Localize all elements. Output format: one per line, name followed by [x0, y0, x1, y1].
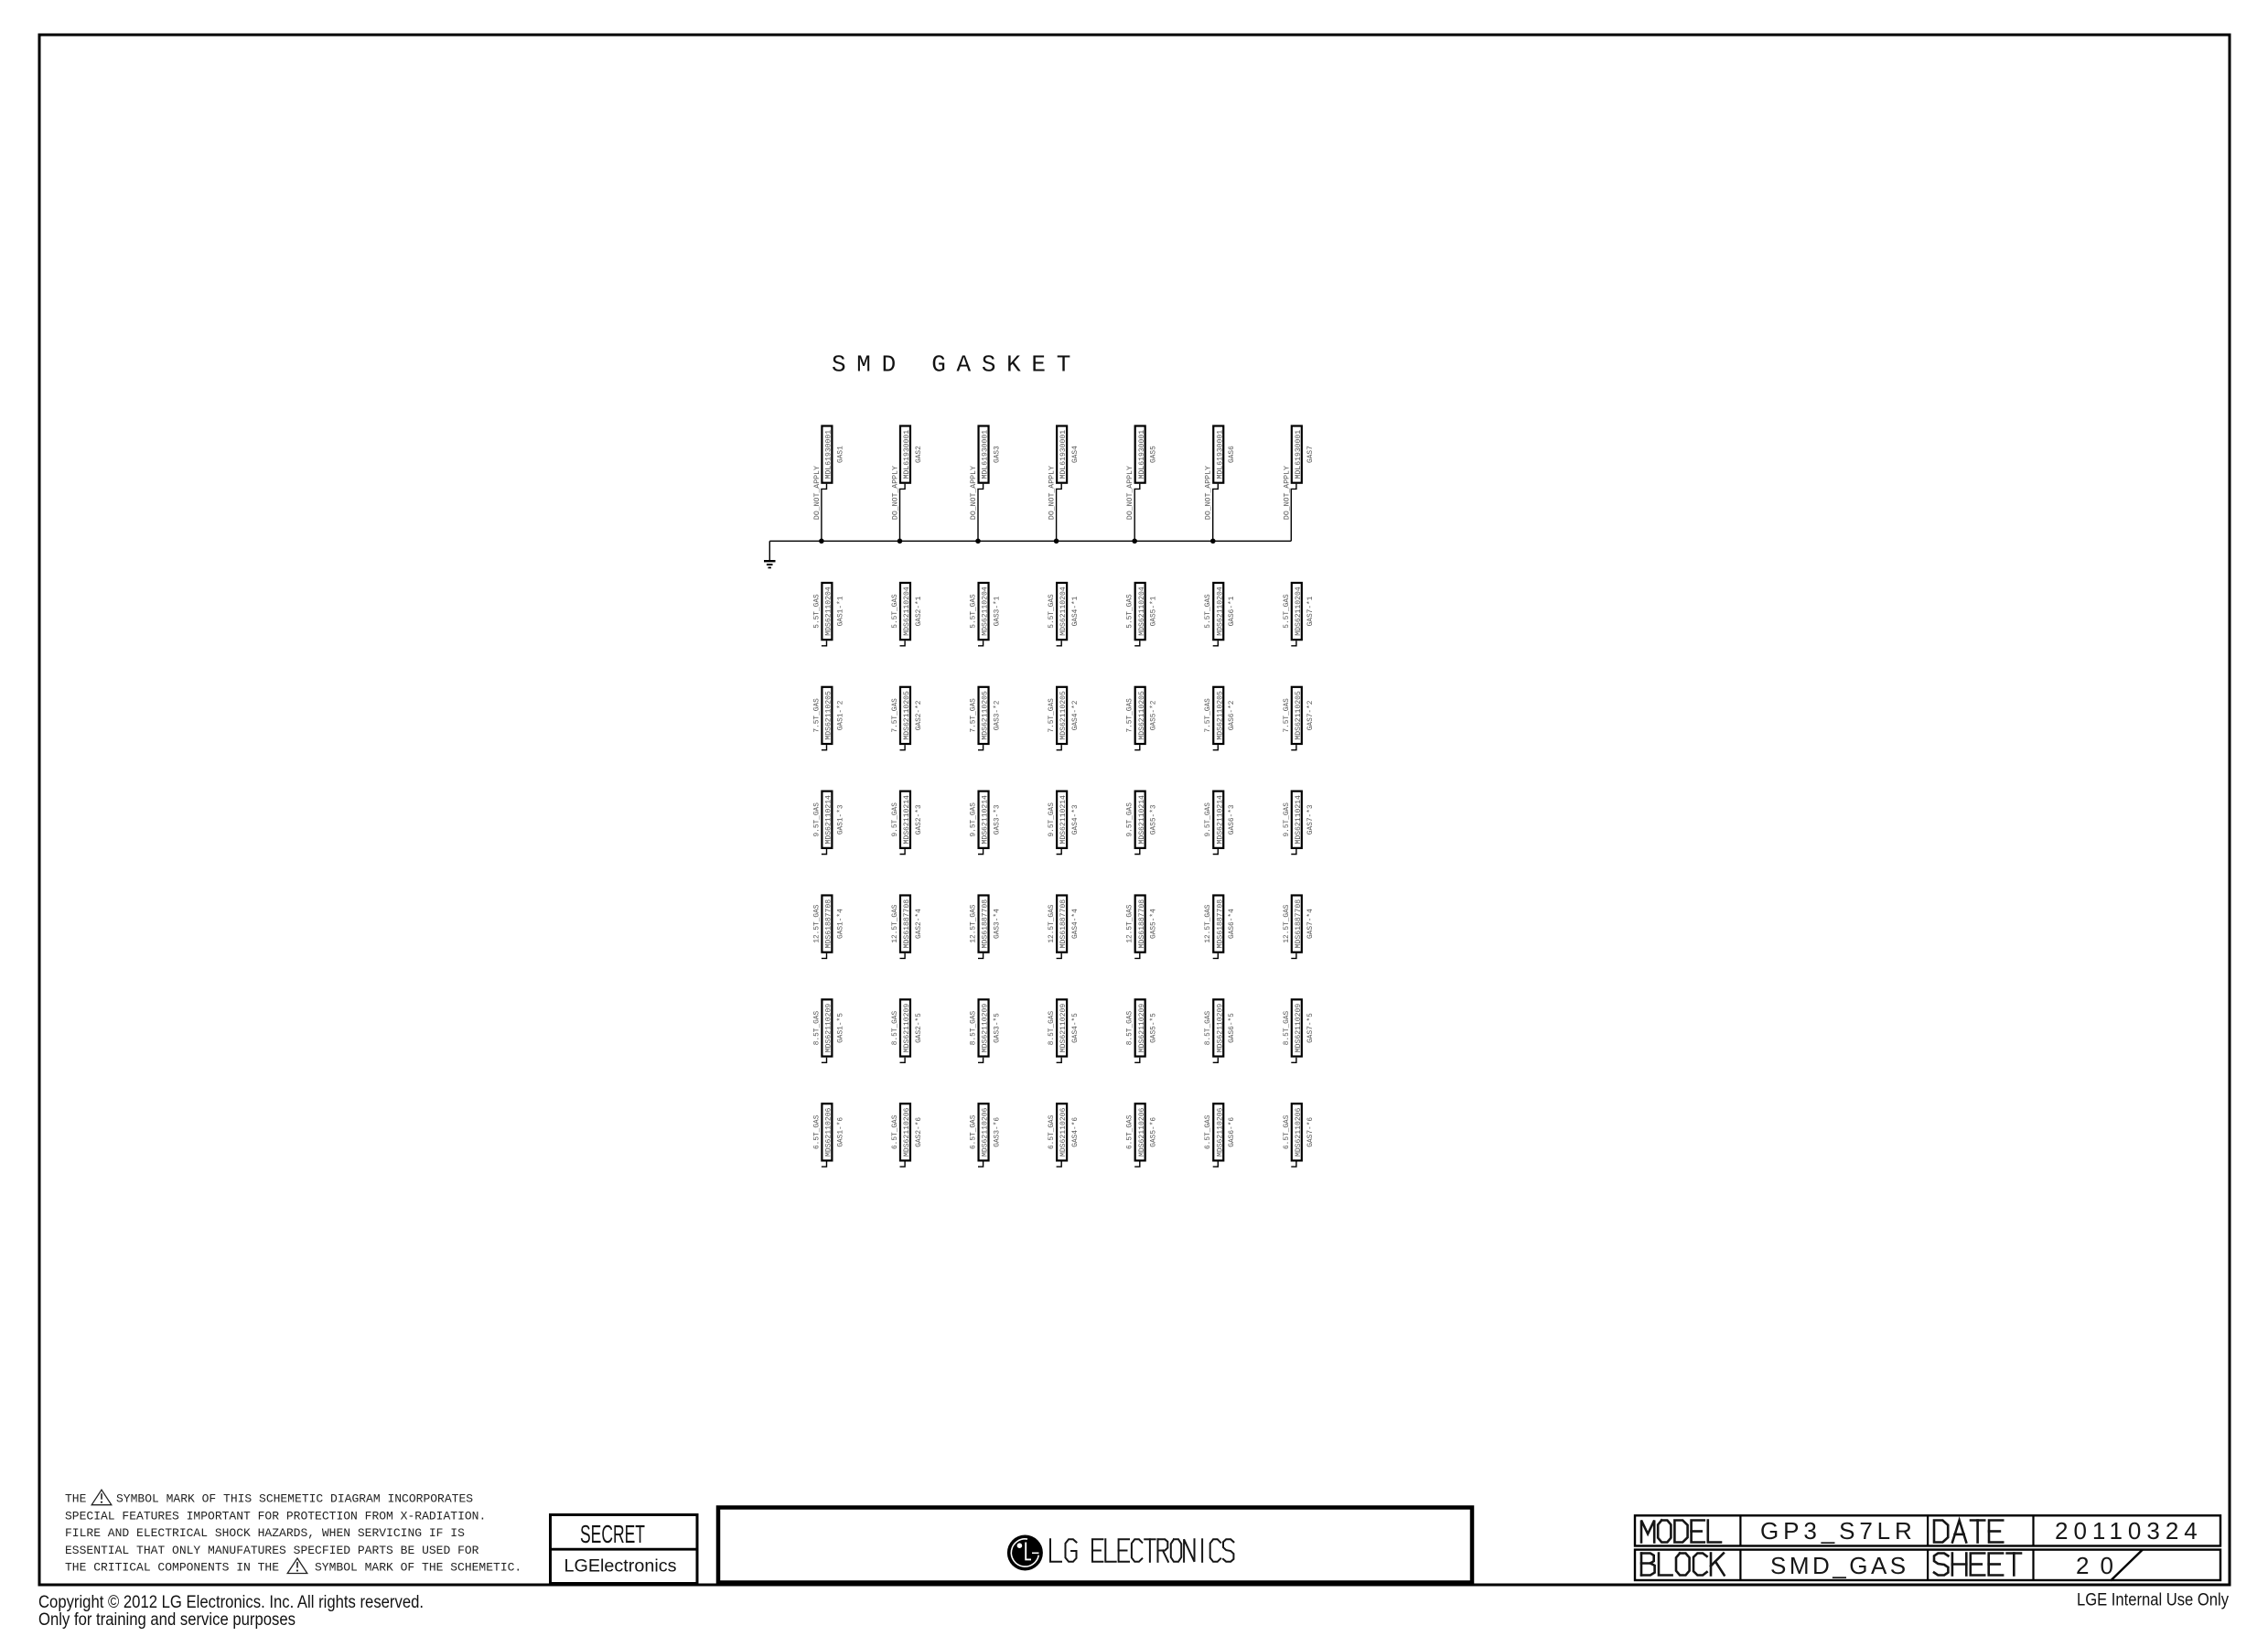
svg-text:MDS62110204: MDS62110204 — [1059, 587, 1068, 636]
svg-text:9.5T_GAS: 9.5T_GAS — [1127, 802, 1134, 837]
svg-text:MDS62110204: MDS62110204 — [1295, 587, 1303, 636]
svg-text:GAS3-*1: GAS3-*1 — [994, 596, 1002, 626]
svg-text:MDS62110204: MDS62110204 — [903, 587, 911, 636]
svg-text:9.5T_GAS: 9.5T_GAS — [1205, 802, 1212, 837]
svg-text:MDS62110204: MDS62110204 — [1216, 587, 1224, 636]
svg-text:GAS4: GAS4 — [1072, 446, 1080, 463]
svg-text:GAS6-*3: GAS6-*3 — [1229, 804, 1236, 834]
svg-text:MDS62110206: MDS62110206 — [1059, 1107, 1068, 1157]
svg-text:MDL61930001: MDL61930001 — [982, 430, 990, 479]
svg-text:GAS1-*4: GAS1-*4 — [837, 909, 844, 939]
svg-text:5.5T_GAS: 5.5T_GAS — [971, 594, 978, 629]
svg-text:7.5T_GAS: 7.5T_GAS — [1048, 698, 1056, 733]
svg-text:9.5T_GAS: 9.5T_GAS — [971, 802, 978, 837]
svg-text:9.5T_GAS: 9.5T_GAS — [1284, 802, 1291, 837]
svg-text:6.5T_GAS: 6.5T_GAS — [1127, 1114, 1134, 1149]
svg-text:6.5T_GAS: 6.5T_GAS — [1048, 1114, 1056, 1149]
svg-text:GAS7-*1: GAS7-*1 — [1307, 596, 1315, 626]
svg-text:MDS62110209: MDS62110209 — [1216, 1004, 1224, 1053]
svg-text:GAS4-*3: GAS4-*3 — [1072, 804, 1080, 834]
svg-text:7.5T_GAS: 7.5T_GAS — [971, 698, 978, 733]
svg-text:MDS62110205: MDS62110205 — [1138, 691, 1146, 740]
svg-text:MDS61887708: MDS61887708 — [1216, 899, 1224, 949]
svg-text:DO_NOT_APPLY: DO_NOT_APPLY — [813, 466, 822, 520]
svg-text:GAS3-*6: GAS3-*6 — [994, 1117, 1002, 1147]
svg-text:7.5T_GAS: 7.5T_GAS — [1205, 698, 1212, 733]
svg-text:MDS62110205: MDS62110205 — [1216, 691, 1224, 740]
svg-text:SMD GASKET: SMD GASKET — [832, 351, 1081, 379]
svg-text:MDS62110214: MDS62110214 — [825, 795, 833, 845]
svg-text:GAS5-*3: GAS5-*3 — [1151, 804, 1158, 834]
svg-text:MDS62110206: MDS62110206 — [982, 1107, 990, 1157]
svg-text:8.5T_GAS: 8.5T_GAS — [1284, 1010, 1291, 1045]
svg-text:7.5T_GAS: 7.5T_GAS — [892, 698, 899, 733]
svg-text:GAS5-*1: GAS5-*1 — [1151, 596, 1158, 626]
svg-text:MDS62110205: MDS62110205 — [825, 691, 833, 740]
svg-text:6.5T_GAS: 6.5T_GAS — [892, 1114, 899, 1149]
svg-text:GAS6-*1: GAS6-*1 — [1229, 596, 1236, 626]
svg-text:GAS4-*2: GAS4-*2 — [1072, 700, 1080, 730]
svg-text:5.5T_GAS: 5.5T_GAS — [892, 594, 899, 629]
svg-text:GAS4-*6: GAS4-*6 — [1072, 1117, 1080, 1147]
svg-text:MDS61887708: MDS61887708 — [1138, 899, 1146, 949]
svg-text:12.5T_GAS: 12.5T_GAS — [1284, 904, 1291, 942]
svg-text:MDS62110209: MDS62110209 — [982, 1004, 990, 1053]
svg-text:GAS2: GAS2 — [916, 446, 923, 463]
svg-text:MDS62110214: MDS62110214 — [1138, 795, 1146, 845]
svg-text:MDL61930001: MDL61930001 — [1138, 430, 1146, 479]
svg-text:8.5T_GAS: 8.5T_GAS — [813, 1010, 821, 1045]
svg-text:SYMBOL MARK OF THIS SCHEMETIC: SYMBOL MARK OF THIS SCHEMETIC DIAGRAM IN… — [116, 1492, 473, 1506]
svg-text:THE CRITICAL COMPONENTS IN THE: THE CRITICAL COMPONENTS IN THE — [65, 1561, 279, 1575]
svg-text:12.5T_GAS: 12.5T_GAS — [1127, 904, 1134, 942]
svg-text:GAS3-*3: GAS3-*3 — [994, 804, 1002, 834]
svg-text:8.5T_GAS: 8.5T_GAS — [971, 1010, 978, 1045]
svg-text:DO_NOT_APPLY: DO_NOT_APPLY — [1048, 466, 1057, 520]
svg-text:12.5T_GAS: 12.5T_GAS — [1205, 904, 1212, 942]
svg-text:MDS62110209: MDS62110209 — [1138, 1004, 1146, 1053]
svg-text:GAS6-*2: GAS6-*2 — [1229, 700, 1236, 730]
svg-text:7.5T_GAS: 7.5T_GAS — [1284, 698, 1291, 733]
svg-text:9.5T_GAS: 9.5T_GAS — [813, 802, 821, 837]
svg-text:MDS62110209: MDS62110209 — [825, 1004, 833, 1053]
svg-text:GAS5-*4: GAS5-*4 — [1151, 909, 1158, 939]
svg-text:GAS2-*5: GAS2-*5 — [916, 1013, 923, 1043]
svg-text:MDS62110214: MDS62110214 — [982, 795, 990, 845]
svg-text:GAS6-*4: GAS6-*4 — [1229, 909, 1236, 939]
svg-text:8.5T_GAS: 8.5T_GAS — [1048, 1010, 1056, 1045]
svg-text:DO_NOT_APPLY: DO_NOT_APPLY — [1205, 466, 1213, 520]
svg-text:MDS62110214: MDS62110214 — [1295, 795, 1303, 845]
svg-text:GAS1-*2: GAS1-*2 — [837, 700, 844, 730]
svg-text:GP3_S7LR: GP3_S7LR — [1760, 1517, 1917, 1545]
svg-text:MDS62110205: MDS62110205 — [1295, 691, 1303, 740]
svg-text:GAS2-*1: GAS2-*1 — [916, 596, 923, 626]
svg-text:12.5T_GAS: 12.5T_GAS — [1048, 904, 1056, 942]
svg-text:8.5T_GAS: 8.5T_GAS — [892, 1010, 899, 1045]
svg-text:MDS62110209: MDS62110209 — [903, 1004, 911, 1053]
svg-text:DO_NOT_APPLY: DO_NOT_APPLY — [1283, 466, 1291, 520]
svg-text:GAS2-*4: GAS2-*4 — [916, 909, 923, 939]
svg-text:GAS7-*5: GAS7-*5 — [1307, 1013, 1315, 1043]
svg-text:MDS62110205: MDS62110205 — [903, 691, 911, 740]
svg-text:GAS5: GAS5 — [1151, 446, 1158, 463]
svg-text:6.5T_GAS: 6.5T_GAS — [813, 1114, 821, 1149]
svg-text:6.5T_GAS: 6.5T_GAS — [1205, 1114, 1212, 1149]
svg-text:MDS62110206: MDS62110206 — [1295, 1107, 1303, 1157]
svg-text:MDS62110206: MDS62110206 — [825, 1107, 833, 1157]
svg-text:GAS3: GAS3 — [994, 446, 1002, 463]
svg-text:ESSENTIAL THAT ONLY MANUFATURE: ESSENTIAL THAT ONLY MANUFATURES SPECFIED… — [65, 1544, 479, 1557]
svg-text:SYMBOL MARK OF THE SCHEMETIC.: SYMBOL MARK OF THE SCHEMETIC. — [315, 1561, 521, 1575]
svg-text:GAS5-*5: GAS5-*5 — [1151, 1013, 1158, 1043]
svg-text:MDS61887708: MDS61887708 — [1059, 899, 1068, 949]
svg-text:GAS7-*2: GAS7-*2 — [1307, 700, 1315, 730]
svg-text:8.5T_GAS: 8.5T_GAS — [1127, 1010, 1134, 1045]
svg-text:MDS62110214: MDS62110214 — [1216, 795, 1224, 845]
svg-text:MDS62110206: MDS62110206 — [903, 1107, 911, 1157]
svg-text:12.5T_GAS: 12.5T_GAS — [971, 904, 978, 942]
svg-text:GAS7-*3: GAS7-*3 — [1307, 804, 1315, 834]
svg-text:9.5T_GAS: 9.5T_GAS — [892, 802, 899, 837]
svg-text:GAS5-*6: GAS5-*6 — [1151, 1117, 1158, 1147]
svg-text:9.5T_GAS: 9.5T_GAS — [1048, 802, 1056, 837]
svg-text:8.5T_GAS: 8.5T_GAS — [1205, 1010, 1212, 1045]
svg-text:MDS62110204: MDS62110204 — [982, 587, 990, 636]
svg-text:THE: THE — [65, 1492, 87, 1506]
svg-text:GAS2-*6: GAS2-*6 — [916, 1117, 923, 1147]
svg-text:MDS61887708: MDS61887708 — [982, 899, 990, 949]
svg-text:GAS5-*2: GAS5-*2 — [1151, 700, 1158, 730]
svg-text:GAS7-*6: GAS7-*6 — [1307, 1117, 1315, 1147]
svg-text:MDS62110205: MDS62110205 — [982, 691, 990, 740]
svg-text:GAS2-*3: GAS2-*3 — [916, 804, 923, 834]
svg-text:MDL61930001: MDL61930001 — [1216, 430, 1224, 479]
svg-text:20110324: 20110324 — [2055, 1517, 2203, 1545]
svg-text:GAS6-*5: GAS6-*5 — [1229, 1013, 1236, 1043]
svg-text:MDS62110214: MDS62110214 — [1059, 795, 1068, 845]
svg-text:Copyright © 2012 LG Electronic: Copyright © 2012 LG Electronics. Inc. Al… — [38, 1593, 424, 1612]
svg-text:5.5T_GAS: 5.5T_GAS — [1127, 594, 1134, 629]
svg-text:MDS62110209: MDS62110209 — [1059, 1004, 1068, 1053]
svg-text:5.5T_GAS: 5.5T_GAS — [1284, 594, 1291, 629]
svg-text:MDS62110206: MDS62110206 — [1138, 1107, 1146, 1157]
svg-text:6.5T_GAS: 6.5T_GAS — [1284, 1114, 1291, 1149]
svg-text:GAS3-*5: GAS3-*5 — [994, 1013, 1002, 1043]
svg-text:GAS7: GAS7 — [1307, 446, 1315, 463]
svg-text:GAS1-*1: GAS1-*1 — [837, 596, 844, 626]
svg-text:GAS3-*4: GAS3-*4 — [994, 909, 1002, 939]
svg-text:MDS62110214: MDS62110214 — [903, 795, 911, 845]
svg-text:GAS1-*6: GAS1-*6 — [837, 1117, 844, 1147]
svg-text:GAS4-*4: GAS4-*4 — [1072, 909, 1080, 939]
svg-text:LGE Internal Use Only: LGE Internal Use Only — [2077, 1591, 2229, 1610]
svg-text:MDS62110206: MDS62110206 — [1216, 1107, 1224, 1157]
svg-text:5.5T_GAS: 5.5T_GAS — [813, 594, 821, 629]
svg-text:Only for training and service: Only for training and service purposes — [38, 1610, 296, 1630]
svg-text:GAS4-*5: GAS4-*5 — [1072, 1013, 1080, 1043]
svg-text:GAS2-*2: GAS2-*2 — [916, 700, 923, 730]
svg-text:MDL61930001: MDL61930001 — [903, 430, 911, 479]
svg-text:GAS7-*4: GAS7-*4 — [1307, 909, 1315, 939]
svg-text:GAS1-*5: GAS1-*5 — [837, 1013, 844, 1043]
svg-text:GAS1-*3: GAS1-*3 — [837, 804, 844, 834]
svg-text:LGElectronics: LGElectronics — [564, 1557, 677, 1577]
svg-text:5.5T_GAS: 5.5T_GAS — [1205, 594, 1212, 629]
svg-text:GAS4-*1: GAS4-*1 — [1072, 596, 1080, 626]
svg-text:GAS6-*6: GAS6-*6 — [1229, 1117, 1236, 1147]
svg-text:DO_NOT_APPLY: DO_NOT_APPLY — [1126, 466, 1134, 520]
svg-text:MDS62110209: MDS62110209 — [1295, 1004, 1303, 1053]
svg-text:GAS6: GAS6 — [1229, 446, 1236, 463]
svg-text:GAS3-*2: GAS3-*2 — [994, 700, 1002, 730]
svg-text:MDL61930001: MDL61930001 — [1295, 430, 1303, 479]
svg-text:5.5T_GAS: 5.5T_GAS — [1048, 594, 1056, 629]
svg-text:MDL61930001: MDL61930001 — [825, 430, 833, 479]
svg-text:SPECIAL FEATURES IMPORTANT FOR: SPECIAL FEATURES IMPORTANT FOR PROTECTIO… — [65, 1509, 486, 1523]
svg-text:MDS62110205: MDS62110205 — [1059, 691, 1068, 740]
svg-text:FILRE AND ELECTRICAL SHOCK HAZ: FILRE AND ELECTRICAL SHOCK HAZARDS, WHEN… — [65, 1526, 465, 1540]
svg-text:6.5T_GAS: 6.5T_GAS — [971, 1114, 978, 1149]
svg-text:MDS62110204: MDS62110204 — [1138, 587, 1146, 636]
svg-text:MDS61887708: MDS61887708 — [903, 899, 911, 949]
svg-text:7.5T_GAS: 7.5T_GAS — [813, 698, 821, 733]
svg-text:7.5T_GAS: 7.5T_GAS — [1127, 698, 1134, 733]
svg-text:SMD_GAS: SMD_GAS — [1770, 1552, 1909, 1579]
svg-text:12.5T_GAS: 12.5T_GAS — [813, 904, 821, 942]
svg-text:GAS1: GAS1 — [837, 446, 844, 463]
svg-text:DO_NOT_APPLY: DO_NOT_APPLY — [970, 466, 978, 520]
svg-text:MDS61887708: MDS61887708 — [825, 899, 833, 949]
svg-text:MDL61930001: MDL61930001 — [1059, 430, 1068, 479]
svg-text:12.5T_GAS: 12.5T_GAS — [892, 904, 899, 942]
svg-text:DO_NOT_APPLY: DO_NOT_APPLY — [892, 466, 900, 520]
svg-text:SECRET: SECRET — [580, 1520, 645, 1548]
svg-text:MDS62110204: MDS62110204 — [825, 587, 833, 636]
svg-text:MDS61887708: MDS61887708 — [1295, 899, 1303, 949]
